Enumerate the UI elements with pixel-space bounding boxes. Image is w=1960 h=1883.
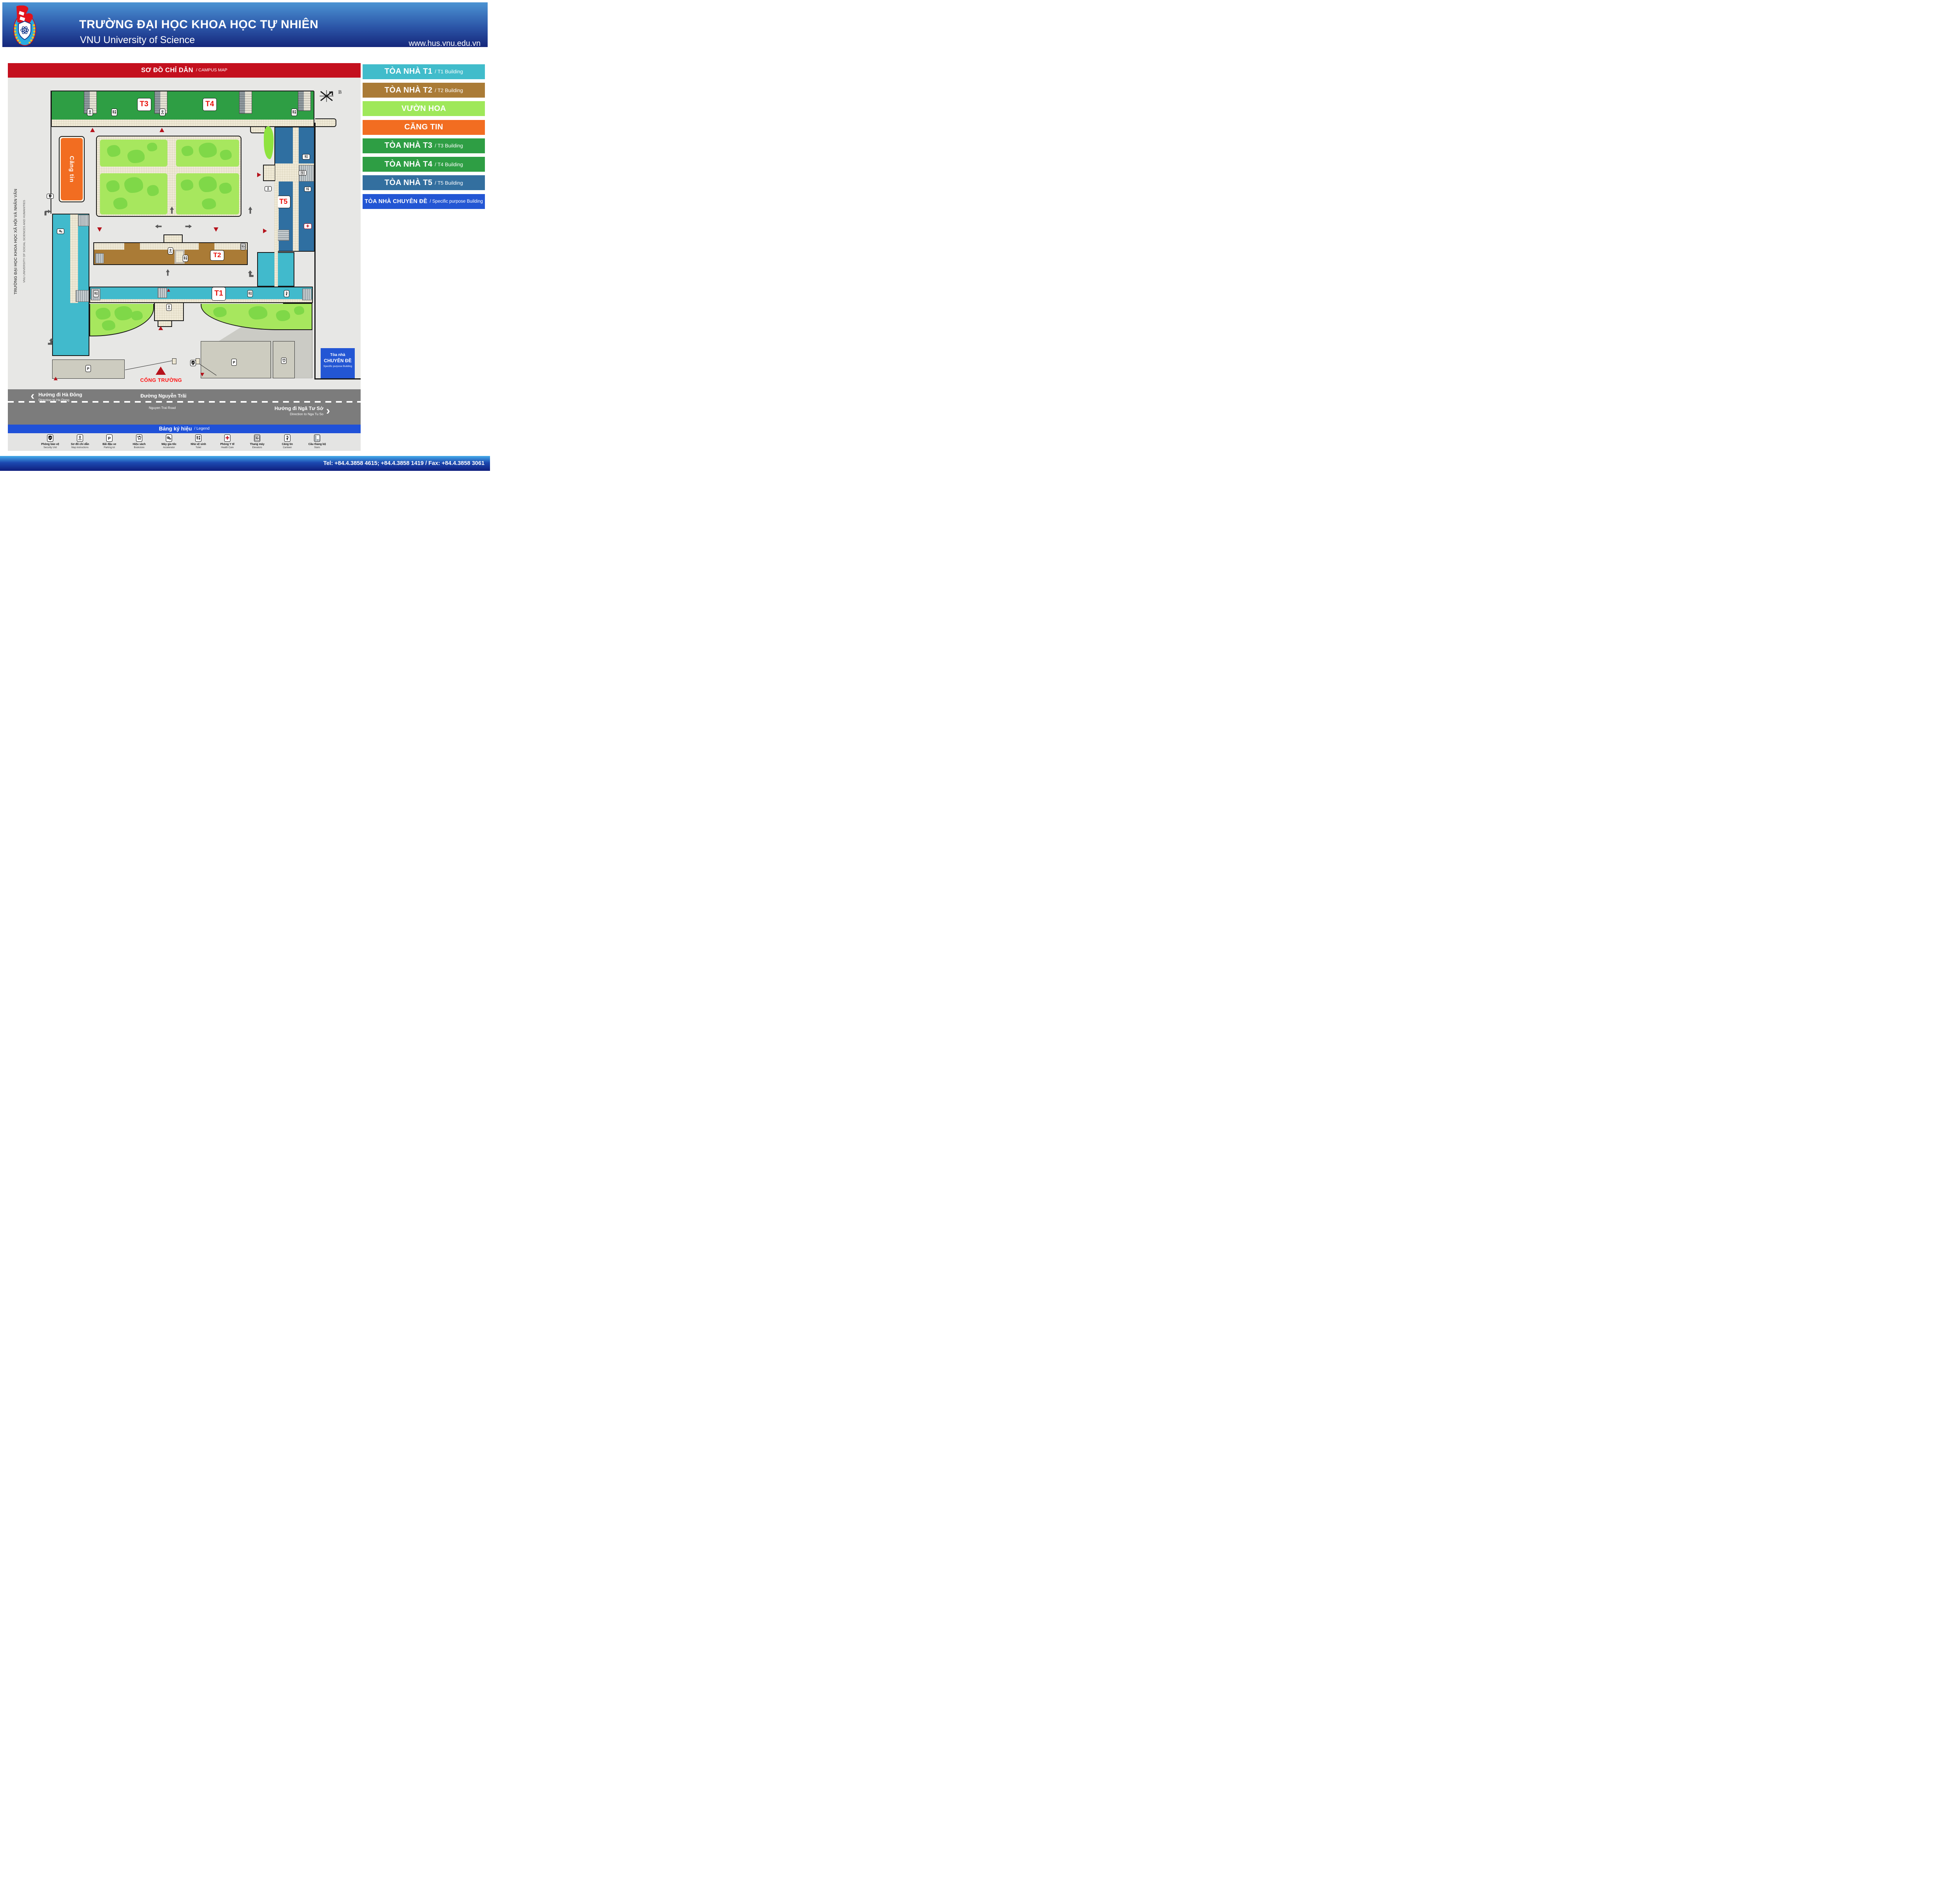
campus-south-boundary bbox=[314, 378, 361, 380]
building-label-t1: T1 bbox=[212, 287, 226, 301]
cang-tin-fill: Căng tin bbox=[61, 138, 83, 200]
gate-post bbox=[172, 358, 176, 364]
legend-item-sublabel: Map instructions bbox=[64, 447, 96, 449]
accelerator-icon bbox=[166, 434, 172, 442]
garden-patch bbox=[100, 140, 167, 167]
chuyen-de-line3: Specific purpose Building bbox=[321, 365, 355, 368]
entrance-marker-right bbox=[263, 229, 267, 233]
building-chuyen-de: Tòa nhà CHUYÊN ĐỀ Specific purpose Build… bbox=[321, 348, 355, 378]
t5-entrance bbox=[263, 165, 275, 181]
legend-item-label: Phòng bảo vệ bbox=[34, 443, 66, 446]
security-icon bbox=[190, 360, 196, 366]
compass-north-label: B bbox=[338, 89, 342, 95]
legend-item-label: Máy gia tốc bbox=[153, 443, 185, 446]
elevator-icon bbox=[254, 434, 260, 442]
entrance-marker-up bbox=[156, 367, 166, 375]
legend-bar-sublabel: / T2 Building bbox=[435, 87, 463, 93]
security-icon bbox=[47, 194, 54, 199]
legend-bar-label: TÒA NHÀ T1 bbox=[385, 67, 432, 76]
toilet-icon bbox=[247, 290, 253, 297]
direction-ngatuso-vi: Hướng đi Ngã Tư Sở bbox=[245, 406, 323, 411]
compass-icon bbox=[319, 90, 334, 102]
legend-bar-sublabel: / Specific purpose Building bbox=[430, 199, 483, 204]
building-t1-bar bbox=[89, 287, 313, 303]
entrance-marker-up bbox=[167, 289, 170, 292]
entrance-marker-up bbox=[54, 377, 58, 380]
legend-bar-label: TÒA NHÀ T4 bbox=[385, 160, 432, 169]
map-title-bar: SƠ ĐỒ CHỈ DẪN / CAMPUS MAP bbox=[8, 63, 361, 78]
stairs bbox=[95, 253, 104, 263]
chuyen-de-line2: CHUYÊN ĐỀ bbox=[321, 358, 355, 363]
t2-entrance bbox=[163, 234, 183, 242]
legend-item-sublabel: Stairs bbox=[301, 447, 333, 449]
legend-bar-sublabel: / T3 Building bbox=[435, 143, 463, 149]
bookstore-icon bbox=[136, 434, 142, 442]
entrance-marker-right bbox=[257, 173, 261, 177]
stairs bbox=[76, 290, 89, 302]
legend-bar-t2: TÒA NHÀ T2/ T2 Building bbox=[363, 83, 485, 98]
parking-icon: P bbox=[231, 359, 237, 366]
garden-patch bbox=[176, 140, 239, 167]
stairwell bbox=[298, 91, 311, 111]
page-title: TRƯỜNG ĐẠI HỌC KHOA HỌC TỰ NHIÊN bbox=[79, 18, 318, 31]
legend-bar-label: CĂNG TIN bbox=[404, 123, 443, 132]
toilet-icon bbox=[183, 255, 188, 262]
legend-bar-chuyen-de: TÒA NHÀ CHUYÊN ĐỀ/ Specific purpose Buil… bbox=[363, 194, 485, 209]
stairs bbox=[278, 230, 289, 241]
legend-item-sublabel: Parking lot bbox=[94, 447, 125, 449]
direction-hadong-vi: Hướng đi Hà Đông bbox=[38, 392, 82, 398]
legend-bar-label: TÒA NHÀ CHUYÊN ĐỀ bbox=[365, 198, 427, 205]
stairs bbox=[302, 289, 312, 300]
chuyen-de-line1: Tòa nhà bbox=[321, 353, 355, 357]
lawn bbox=[201, 304, 312, 330]
university-logo bbox=[13, 5, 38, 47]
map-instructions-icon bbox=[160, 109, 165, 116]
svg-text:P: P bbox=[108, 436, 111, 441]
legend-title-en: / Legend bbox=[194, 427, 210, 431]
neighbor-university-label-vi: TRƯỜNG ĐẠI HỌC KHOA HỌC XÃ HỘI VÀ NHÂN V… bbox=[13, 176, 18, 307]
entrance-marker-down bbox=[200, 373, 204, 376]
corridor bbox=[293, 127, 299, 251]
legend-item-label: Bãi đậu xe bbox=[94, 443, 125, 446]
svg-text:P: P bbox=[233, 360, 235, 364]
cang-tin-label: Căng tin bbox=[68, 156, 75, 182]
bookstore-icon bbox=[281, 358, 287, 364]
lawn bbox=[89, 304, 154, 336]
legend-bar-t1: TÒA NHÀ T1/ T1 Building bbox=[363, 64, 485, 79]
neighbor-university-label-en: VNU UNIVERSITY OF SOCIAL SCIENCES AND HU… bbox=[22, 176, 26, 307]
corridor bbox=[274, 181, 278, 301]
direction-arrow-up bbox=[169, 206, 175, 214]
entrance-marker-down bbox=[214, 227, 218, 232]
direction-arrow-turnUm bbox=[47, 338, 54, 345]
healthcare-icon bbox=[224, 434, 230, 442]
legend-item-label: Nhà vệ sinh bbox=[183, 443, 214, 446]
walkway-tab bbox=[315, 118, 336, 127]
website-link[interactable]: www.hus.vnu.edu.vn bbox=[379, 39, 481, 48]
chevron-left-icon: ‹ bbox=[31, 390, 34, 402]
toilet-icon bbox=[111, 109, 117, 116]
gate-label: CỔNG TRƯỜNG bbox=[140, 377, 183, 383]
direction-arrow-right bbox=[185, 223, 192, 229]
building-label-t5: T5 bbox=[276, 196, 290, 208]
building-label-t3: T3 bbox=[137, 98, 151, 111]
legend-item-sublabel: Toilet bbox=[183, 447, 214, 449]
elevator-icon bbox=[240, 243, 246, 250]
garden-vuon-hoa bbox=[96, 136, 241, 217]
legend-bar-sublabel: / T4 Building bbox=[435, 162, 463, 167]
map-instructions-icon bbox=[166, 304, 172, 311]
toilet-icon bbox=[93, 290, 99, 297]
legend-item-label: Cầu thang bộ bbox=[301, 443, 333, 446]
map-instructions-icon bbox=[265, 186, 272, 191]
gears-icon bbox=[57, 229, 64, 234]
chevron-right-icon: › bbox=[326, 405, 330, 417]
street-name-en: Nguyen Trai Road bbox=[123, 406, 201, 410]
legend-item-sublabel: Security Unit bbox=[34, 447, 66, 449]
legend-item-sublabel: Health Care bbox=[212, 447, 243, 449]
legend-bar-label: VƯỜN HOA bbox=[401, 104, 446, 113]
legend-item-label: Thang máy bbox=[241, 443, 273, 446]
legend-item-sublabel: Canteen bbox=[272, 447, 303, 449]
map-instructions-icon bbox=[87, 109, 93, 116]
legend-item-label: Căng tin bbox=[272, 443, 303, 446]
walkway bbox=[52, 120, 314, 126]
walkway bbox=[90, 299, 312, 302]
entrance-marker-down bbox=[97, 227, 102, 232]
legend-bar-label: TÒA NHÀ T5 bbox=[385, 178, 432, 187]
parking-icon: P bbox=[85, 365, 91, 372]
campus-east-boundary bbox=[314, 123, 316, 379]
legend-bar-sublabel: / T5 Building bbox=[435, 180, 463, 186]
walkway-tab bbox=[250, 127, 266, 133]
direction-arrow-up bbox=[247, 206, 253, 214]
entrance-marker-up bbox=[158, 326, 163, 330]
legend-item-label: Hiệu sách bbox=[123, 443, 155, 446]
legend-item-label: Sơ đồ chỉ dẫn bbox=[64, 443, 96, 446]
legend-bar-label: TÒA NHÀ T3 bbox=[385, 141, 432, 150]
legend-item-sublabel: Elevators bbox=[241, 447, 273, 449]
footer: Tel: +84.4.3858 4615; +84.4.3858 1419 / … bbox=[0, 456, 490, 471]
stairs-icon bbox=[314, 434, 320, 442]
canteen-icon bbox=[284, 434, 290, 442]
garden-patch bbox=[176, 173, 239, 214]
campus-map: T3 T4 B Căng tin bbox=[8, 78, 361, 389]
street-name-vi: Đường Nguyễn Trãi bbox=[124, 393, 203, 399]
map-title-en: / CAMPUS MAP bbox=[196, 68, 227, 73]
parking-icon: P bbox=[106, 434, 113, 442]
direction-arrow-turnU bbox=[247, 270, 254, 278]
legend-bar-sublabel: / T1 Building bbox=[435, 69, 463, 74]
garden-patch bbox=[100, 173, 167, 214]
legend-item-sublabel: Accelerator bbox=[153, 447, 185, 449]
legend-item-sublabel: Bookstore bbox=[123, 447, 155, 449]
legend-body: Phòng bảo vệSecurity UnitSơ đồ chỉ dẫnMa… bbox=[8, 433, 361, 451]
direction-arrow-left bbox=[154, 223, 162, 229]
legend-bar-t4: TÒA NHÀ T4/ T4 Building bbox=[363, 157, 485, 172]
legend-bar-cang-tin: CĂNG TIN bbox=[363, 120, 485, 135]
t2-block bbox=[199, 243, 214, 250]
canteen-icon bbox=[284, 290, 289, 297]
footer-contact: Tel: +84.4.3858 4615; +84.4.3858 1419 / … bbox=[323, 460, 485, 467]
direction-ngatuso-en: Direction to Nga Tu So bbox=[245, 412, 323, 416]
map-instructions-icon bbox=[77, 434, 83, 442]
legend-bar-t5: TÒA NHÀ T5/ T5 Building bbox=[363, 175, 485, 190]
header: TRƯỜNG ĐẠI HỌC KHOA HỌC TỰ NHIÊN VNU Uni… bbox=[2, 2, 488, 47]
toilet-icon bbox=[291, 109, 297, 116]
building-cang-tin: Căng tin bbox=[59, 136, 85, 202]
map-instructions-icon bbox=[168, 247, 173, 254]
entrance-marker-up bbox=[90, 128, 95, 132]
healthcare-icon bbox=[304, 223, 312, 229]
security-icon bbox=[47, 434, 53, 442]
legend-item-label: Phòng Y tế bbox=[212, 443, 243, 446]
page-subtitle: VNU University of Science bbox=[80, 35, 195, 46]
toilet-icon bbox=[302, 154, 310, 160]
legend-bar-label: TÒA NHÀ T2 bbox=[385, 86, 432, 95]
road-center-line bbox=[8, 401, 361, 403]
building-t1-west-wing bbox=[52, 214, 89, 356]
campus-map-poster: TRƯỜNG ĐẠI HỌC KHOA HỌC TỰ NHIÊN VNU Uni… bbox=[0, 0, 490, 471]
stairwell bbox=[239, 91, 252, 114]
tree bbox=[264, 126, 274, 159]
legend-title-vi: Bảng ký hiệu bbox=[159, 426, 192, 432]
elevator-icon bbox=[299, 170, 307, 176]
building-label-t4: T4 bbox=[203, 98, 217, 111]
direction-arrow-turnR bbox=[44, 209, 51, 216]
building-label-t2: T2 bbox=[210, 250, 224, 261]
svg-text:P: P bbox=[87, 367, 89, 370]
entrance-marker-up bbox=[160, 128, 164, 132]
toilet-icon bbox=[304, 187, 311, 192]
gate-post bbox=[196, 358, 200, 364]
legend-bar-vuon-hoa: VƯỜN HOA bbox=[363, 101, 485, 116]
road-nguyen-trai: ‹ Hướng đi Hà Đông Direction to Ha Dong … bbox=[8, 389, 361, 425]
stairs bbox=[158, 288, 167, 298]
map-title-vi: SƠ ĐỒ CHỈ DẪN bbox=[141, 67, 193, 74]
legend-bar-t3: TÒA NHÀ T3/ T3 Building bbox=[363, 138, 485, 153]
stairs bbox=[78, 215, 89, 226]
toilet-icon bbox=[195, 434, 201, 442]
t2-block bbox=[124, 243, 140, 250]
legend-header: Bảng ký hiệu / Legend bbox=[8, 425, 361, 434]
direction-arrow-up bbox=[165, 269, 171, 276]
